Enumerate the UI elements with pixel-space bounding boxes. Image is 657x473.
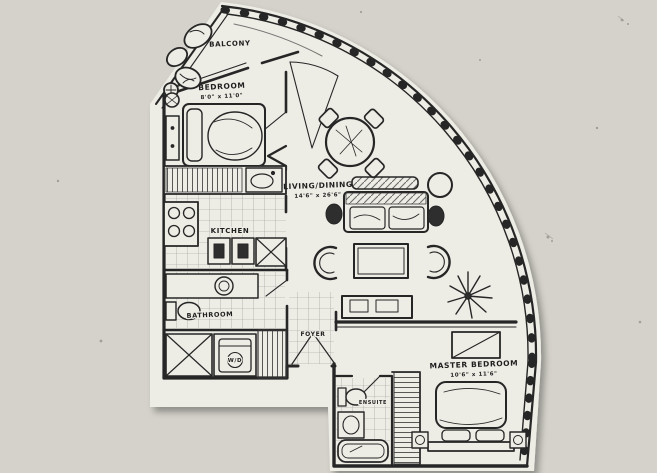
barrel-chair-right bbox=[428, 246, 450, 278]
sofa-end-table bbox=[326, 204, 342, 224]
kitchen-sink bbox=[246, 168, 282, 192]
bedroom-bed bbox=[183, 104, 265, 166]
ensuite-label: ENSUITE bbox=[359, 400, 387, 406]
kitchen-fridge bbox=[256, 238, 286, 266]
bathroom-label: BATHROOM bbox=[186, 310, 233, 320]
washer-dryer bbox=[214, 334, 256, 376]
master-closet bbox=[394, 372, 420, 464]
balcony-label: BALCONY bbox=[209, 39, 251, 48]
floorplan-drawing: BALCONY BEDROOM 8'0" x 11'0" LIVING/DINI… bbox=[0, 0, 657, 473]
bathroom-vanity bbox=[166, 274, 258, 298]
master-dresser bbox=[452, 332, 500, 358]
hall-closet bbox=[166, 334, 212, 376]
kitchen-label: KITCHEN bbox=[211, 227, 250, 235]
round-side-table bbox=[428, 173, 452, 197]
ensuite-sink bbox=[338, 412, 364, 438]
barrel-chair-left bbox=[314, 247, 336, 279]
linen-closet bbox=[258, 330, 286, 378]
ensuite-tub bbox=[338, 440, 388, 462]
sofa-table bbox=[352, 177, 418, 189]
nightstand-right bbox=[510, 432, 526, 448]
sofa-end-table bbox=[428, 206, 444, 226]
nightstand-left bbox=[412, 432, 428, 448]
laundry-closet-strip bbox=[166, 330, 286, 378]
sofa bbox=[344, 192, 428, 232]
console-table bbox=[342, 296, 412, 318]
foyer-tile-floor bbox=[289, 292, 334, 364]
coffee-table bbox=[354, 244, 408, 278]
bedroom-dresser bbox=[166, 116, 179, 160]
foyer-label: FOYER bbox=[300, 331, 325, 338]
scanned-floorplan-page: BALCONY BEDROOM 8'0" x 11'0" LIVING/DINI… bbox=[0, 0, 657, 473]
kitchen-stove bbox=[164, 202, 198, 246]
washer-dryer-label: W/D bbox=[228, 358, 242, 364]
